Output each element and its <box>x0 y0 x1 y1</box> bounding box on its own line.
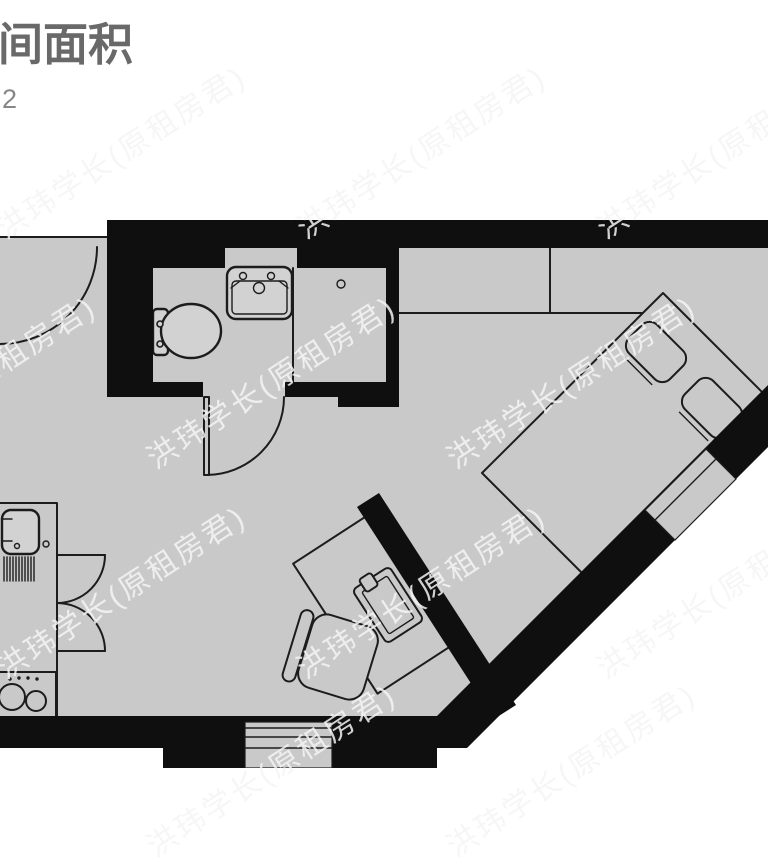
toilet-bolt-bottom <box>157 341 163 347</box>
stove-knob-2 <box>17 676 20 679</box>
wall-bathroom-bottom-left <box>150 382 203 397</box>
floor-plan-drawing <box>0 0 768 768</box>
wall-top <box>107 220 768 248</box>
floor-plan-page: 间面积 2 洪玮学长(原租房君) 洪玮学长(原租房君) 洪玮学长(原租房君) 洪… <box>0 0 768 768</box>
bathroom-door-leaf <box>204 397 209 475</box>
stove-knob-3 <box>26 676 29 679</box>
area-value: 2 <box>2 84 17 115</box>
wall-bathroom-top-right <box>297 246 399 268</box>
toilet <box>153 304 221 358</box>
wall-bathroom-right <box>386 220 399 397</box>
toilet-bolt-top <box>157 321 163 327</box>
wall-bathroom-corner-step <box>338 397 399 407</box>
stove-knob-4 <box>35 677 38 680</box>
window-south <box>245 722 332 768</box>
bathroom-sink <box>227 267 292 319</box>
kitchen-sink <box>2 510 39 554</box>
wall-bathroom-bottom-right <box>285 382 399 397</box>
toilet-bowl <box>161 304 221 358</box>
stove-knob-1 <box>8 677 11 680</box>
wall-bathroom-left <box>107 220 153 397</box>
page-title: 间面积 <box>0 8 133 73</box>
wall-bathroom-top-left <box>153 246 225 268</box>
